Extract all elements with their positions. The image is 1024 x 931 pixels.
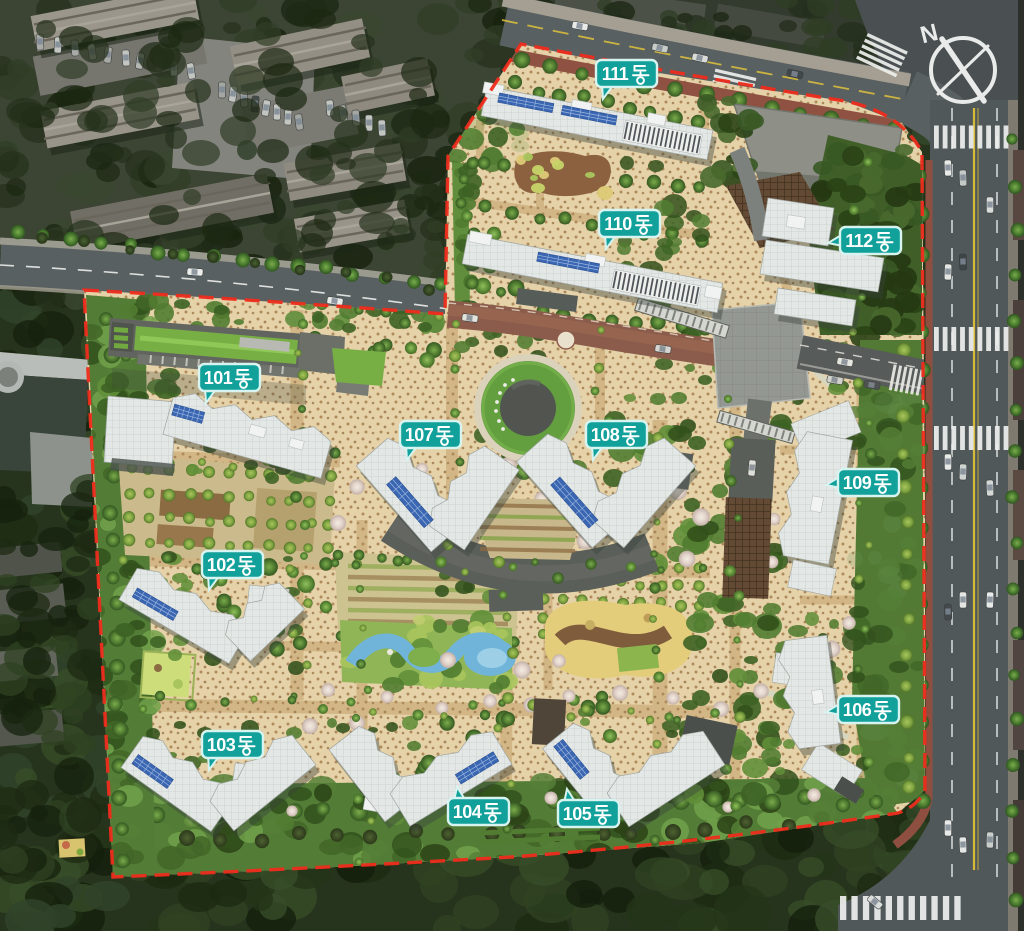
svg-text:103: 103 (207, 735, 236, 755)
svg-text:112: 112 (845, 231, 873, 251)
svg-text:101: 101 (204, 368, 233, 388)
svg-text:106: 106 (843, 700, 872, 720)
svg-text:108: 108 (591, 425, 620, 445)
svg-text:107: 107 (405, 425, 434, 445)
svg-text:104: 104 (453, 802, 482, 822)
svg-text:110: 110 (604, 214, 632, 234)
svg-text:105: 105 (563, 804, 592, 824)
svg-text:102: 102 (207, 555, 236, 575)
svg-text:109: 109 (843, 473, 872, 493)
svg-text:111: 111 (602, 64, 629, 84)
